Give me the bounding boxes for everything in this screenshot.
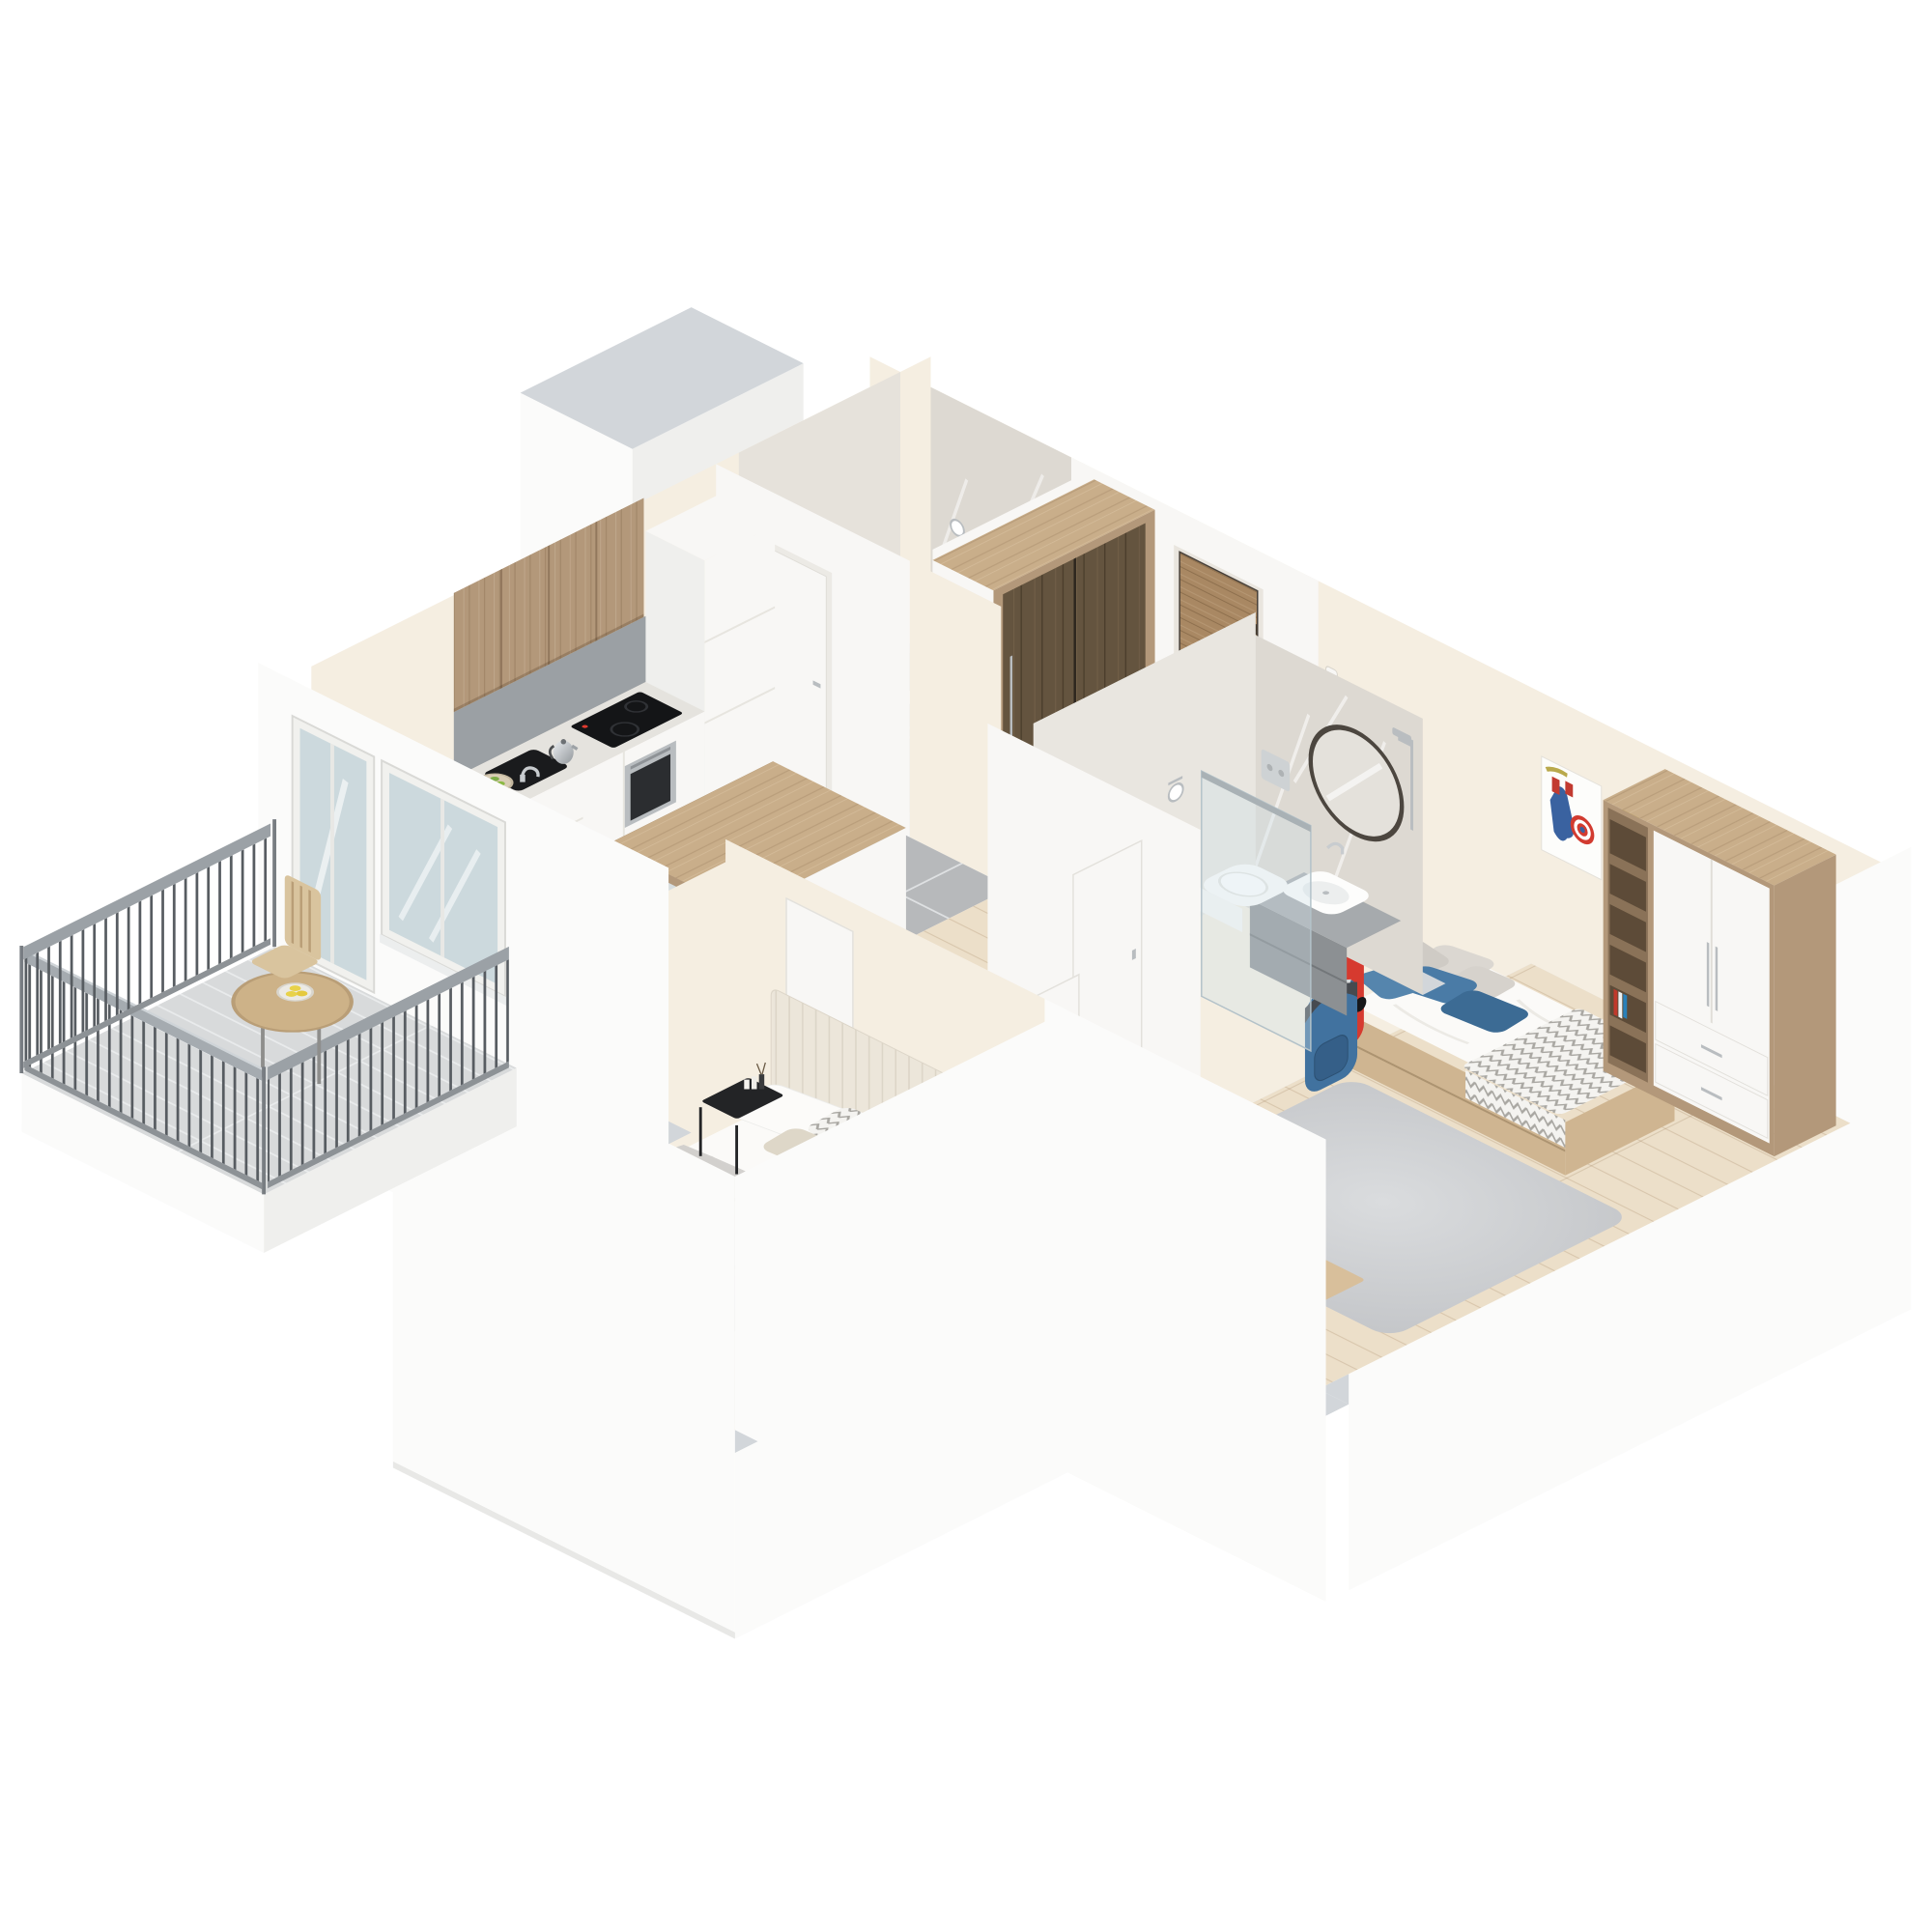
book bbox=[1613, 989, 1617, 1016]
door-handle bbox=[1132, 949, 1136, 960]
floorplan-stage: Isometric 3D cutaway floor plan — one-be… bbox=[0, 0, 1932, 1932]
apartment-scene: hallway Captain America poster Spider-Ma… bbox=[21, 307, 1911, 1638]
unit-side bbox=[1775, 855, 1836, 1156]
door-handle bbox=[1707, 942, 1709, 1007]
shower-column bbox=[1410, 739, 1413, 831]
hall-partial-face bbox=[910, 561, 1001, 883]
column-front bbox=[704, 526, 775, 805]
diffuser bbox=[759, 1074, 765, 1089]
book bbox=[1618, 991, 1622, 1018]
book bbox=[1623, 994, 1627, 1019]
floorplan-render: Isometric 3D cutaway floor plan — one-be… bbox=[0, 0, 1932, 1932]
door-handle bbox=[1716, 947, 1718, 1011]
